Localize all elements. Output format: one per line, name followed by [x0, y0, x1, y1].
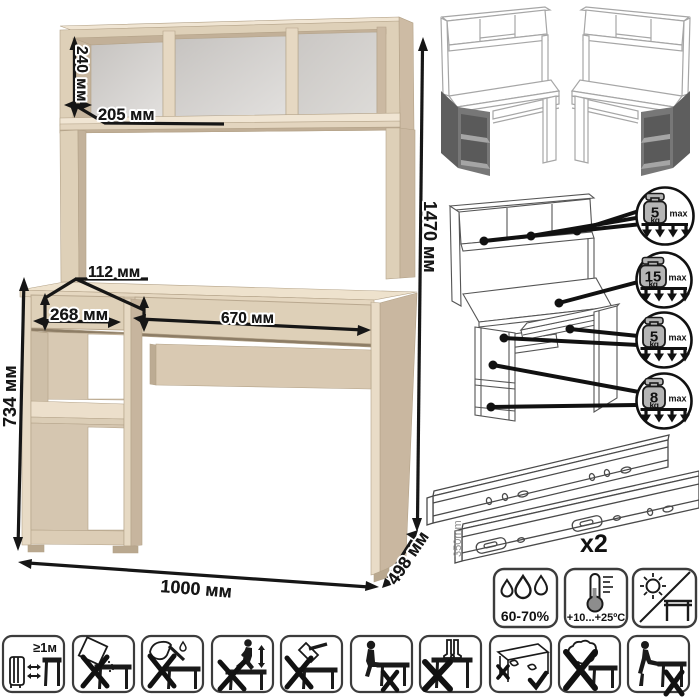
svg-text:max: max [669, 273, 687, 283]
svg-text:max: max [670, 209, 688, 219]
svg-text:240 мм: 240 мм [73, 46, 90, 102]
svg-text:max: max [669, 333, 687, 343]
svg-text:734 мм: 734 мм [0, 365, 20, 427]
svg-text:≥1м: ≥1м [33, 640, 57, 655]
svg-text:670 мм: 670 мм [221, 310, 274, 327]
svg-text:x2: x2 [580, 530, 608, 558]
svg-text:+10...+25ºC: +10...+25ºC [567, 612, 626, 624]
svg-text:1470 мм: 1470 мм [420, 201, 440, 273]
svg-text:268 мм: 268 мм [50, 305, 108, 324]
svg-text:60-70%: 60-70% [501, 608, 550, 624]
svg-text:350mm: 350mm [452, 520, 464, 557]
svg-text:112 мм: 112 мм [88, 264, 140, 281]
svg-text:1000 мм: 1000 мм [160, 576, 233, 602]
svg-text:max: max [669, 394, 687, 404]
svg-text:205 мм: 205 мм [98, 106, 155, 124]
